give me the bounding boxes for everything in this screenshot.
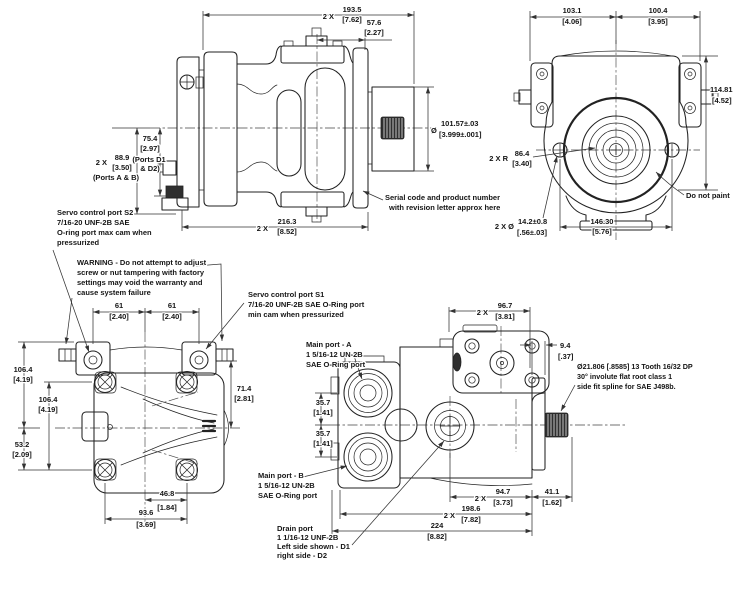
dim-2163-mm: 216.3 — [278, 217, 297, 226]
drain-line2: 1 1/16-12 UNF-2B — [277, 533, 339, 542]
spline-note-line1: Ø21.806 [.8585] 13 Tooth 16/32 DP — [577, 362, 693, 371]
spline-note-line3: side fit spline for SAE J498b. — [577, 382, 676, 391]
dim-714-mm: 71.4 — [237, 384, 252, 393]
port-centerlines — [330, 326, 626, 458]
pump-dimension-drawing: 2 X 193.5 [7.62] 57.6 [2.27] 2 X 88.9 [3… — [0, 0, 738, 594]
port-b-leader — [303, 466, 347, 477]
dim-1004-mm: 100.4 — [649, 6, 669, 15]
dim-61L-mm: 61 — [115, 301, 123, 310]
adjust-screw-left — [59, 349, 76, 361]
drawing-svg: 2 X 193.5 [7.62] 57.6 [2.27] 2 X 88.9 [3… — [0, 0, 738, 594]
dim-1004-in: [3.95] — [648, 17, 668, 26]
dim-936-mm: 93.6 — [139, 508, 154, 517]
dim-142-mm: 14.2±0.8 — [518, 217, 547, 226]
dim-142-in: [.56±.03] — [517, 228, 547, 237]
rear-centerlines — [536, 40, 700, 240]
dim-532-mm: 53.2 — [15, 440, 30, 449]
mount-port-bl — [95, 460, 116, 481]
do-not-paint-note: Do not paint — [686, 191, 730, 200]
dim-94-mm: 9.4 — [560, 341, 571, 350]
dim-1064a-mm: 106.4 — [14, 365, 34, 374]
dim-1016-in: [3.999±.001] — [439, 130, 482, 139]
dim-1986-mm: 198.6 — [462, 504, 481, 513]
dim-1064b-in: [4.19] — [38, 405, 58, 414]
dim-411-in: [1.62] — [542, 498, 562, 507]
dim-1064b-mm: 106.4 — [39, 395, 59, 404]
dim-1935-mm: 193.5 — [343, 5, 362, 14]
dim-61R-in: [2.40] — [162, 312, 182, 321]
output-spline-ribs — [548, 414, 566, 436]
servo-port-s2-boss — [84, 351, 102, 369]
port-b-line2: 1 5/16-12 UN-2B — [258, 481, 315, 490]
dim-411-mm: 41.1 — [545, 487, 560, 496]
adjust-screw-right — [216, 349, 233, 361]
main-port-b — [344, 433, 392, 481]
dim-468-mm: 46.8 — [160, 489, 175, 498]
dim-889-prefix: 2 X — [96, 158, 107, 167]
s2-note-line4: pressurized — [57, 238, 100, 247]
dim-224-mm: 224 — [431, 521, 444, 530]
port-a-line3: SAE O-Ring port — [306, 360, 366, 369]
rear-lug-right — [679, 63, 701, 127]
drain-line1: Drain port — [277, 524, 313, 533]
dim-714-in: [2.81] — [234, 394, 254, 403]
warning-leader-left — [66, 298, 72, 344]
dim-11481-in: [4.52] — [712, 96, 732, 105]
s1-leader — [206, 303, 244, 349]
dim-967-in: [3.81] — [495, 312, 515, 321]
dim-889-note: (Ports A & B) — [93, 173, 140, 182]
port-b-line3: SAE O-Ring port — [258, 491, 318, 500]
dim-94-in: [.37] — [558, 352, 574, 361]
drain-line4: right side - D2 — [277, 551, 327, 560]
side-boss — [82, 412, 108, 441]
dim-1935-prefix: 2 X — [323, 12, 334, 21]
s2-note-line1: Servo control port S2 — [57, 208, 133, 217]
dim-357a-in: [1.41] — [313, 408, 333, 417]
dim-947-prefix: 2 X — [475, 494, 486, 503]
warning-line3: settings may void the warranty and — [77, 278, 203, 287]
output-splined-shaft — [545, 413, 568, 437]
bottom-plug — [306, 207, 327, 216]
top-view: Servo control port S2 7/16-20 UNF-2B SAE… — [12, 208, 254, 529]
main-port-a — [344, 369, 392, 417]
dim-1031-in: [4.06] — [562, 17, 582, 26]
serial-leader — [363, 191, 383, 200]
s1-note-line2: 7/16-20 UNF-2B SAE O-Ring port — [248, 300, 365, 309]
dim-754-mm: 75.4 — [143, 134, 158, 143]
dim-1064a-in: [4.19] — [13, 375, 33, 384]
spline-leader — [561, 385, 575, 411]
dim-576-mm: 57.6 — [367, 18, 382, 27]
top-text: Servo control port S2 7/16-20 UNF-2B SAE… — [12, 208, 254, 529]
side-outline — [158, 28, 414, 222]
dim-1463-in: [5.76] — [592, 227, 612, 236]
dim-r864-prefix: 2 X R — [489, 154, 508, 163]
dim-576-in: [2.27] — [364, 28, 384, 37]
side-view: 2 X 193.5 [7.62] 57.6 [2.27] 2 X 88.9 [3… — [93, 5, 500, 236]
warning-line1: WARNING - Do not attempt to adjust — [77, 258, 207, 267]
dim-532-in: [2.09] — [12, 450, 32, 459]
serial-note-line1: Serial code and product number — [385, 193, 500, 202]
port-view: Servo control port S1 7/16-20 UNF-2B SAE… — [206, 290, 693, 560]
s2-note-line3: O-ring port max cam when — [57, 228, 152, 237]
s1-note-line3: min cam when pressurized — [248, 310, 344, 319]
warning-line2: screw or nut tampering with factory — [77, 268, 205, 277]
rear-view: 103.1 [4.06] 100.4 [3.95] 114.81 [4.52] … — [489, 6, 732, 240]
dim-754-note2: & D2) — [140, 164, 160, 173]
dim-11481-mm: 114.81 — [710, 85, 733, 94]
spline-ribs — [384, 118, 402, 138]
dim-61L-in: [2.40] — [109, 312, 129, 321]
dim-754-note1: (Ports D1 — [132, 155, 165, 164]
dim-r864-mm: 86.4 — [515, 149, 530, 158]
rear-lug-left — [531, 63, 553, 127]
dim-1016-symbol: Ø — [431, 126, 437, 135]
dim-754-in: [2.97] — [140, 144, 160, 153]
dim-r864-in: [3.40] — [512, 159, 532, 168]
side-text: 2 X 193.5 [7.62] 57.6 [2.27] 2 X 88.9 [3… — [93, 5, 500, 236]
dim-967-mm: 96.7 — [498, 301, 513, 310]
s1-note-line1: Servo control port S1 — [248, 290, 324, 299]
dim-889-mm: 88.9 — [115, 153, 130, 162]
dim-1986-prefix: 2 X — [444, 511, 455, 520]
dim-468-in: [1.84] — [157, 503, 177, 512]
dim-1986-in: [7.82] — [461, 515, 481, 524]
adjust-nut-top — [306, 36, 327, 46]
dim-357a-mm: 35.7 — [316, 398, 331, 407]
dim-967-prefix: 2 X — [477, 308, 488, 317]
s2-note-line2: 7/16-20 UNF-2B SAE — [57, 218, 130, 227]
dim-2163-in: [8.52] — [277, 227, 297, 236]
top-centerlines — [55, 332, 242, 524]
port-outline — [331, 325, 568, 488]
dim-142-prefix: 2 X Ø — [495, 222, 514, 231]
port-b-line1: Main port - B — [258, 471, 304, 480]
dim-1016-mm: 101.57±.03 — [441, 119, 478, 128]
serial-note-line2: with revision letter approx here — [388, 203, 500, 212]
dim-224-in: [8.82] — [427, 532, 447, 541]
port-a-line1: Main port - A — [306, 340, 352, 349]
dim-61R-mm: 61 — [168, 301, 176, 310]
dim-2163-prefix: 2 X — [257, 224, 268, 233]
dim-1935-in: [7.62] — [342, 15, 362, 24]
dim-936-in: [3.69] — [136, 520, 156, 529]
port-a-line2: 1 5/16-12 UN-2B — [306, 350, 363, 359]
dim-947-mm: 94.7 — [496, 487, 511, 496]
dim-947-in: [3.73] — [493, 498, 513, 507]
servo-port-s1-boss — [190, 351, 208, 369]
dim-889-in: [3.50] — [112, 163, 132, 172]
drain-line3: Left side shown - D1 — [277, 542, 350, 551]
rear-hex-left — [519, 90, 531, 104]
dim-357b-in: [1.41] — [313, 439, 333, 448]
spline-note-line2: 30° involute flat root class 1 — [577, 372, 672, 381]
hole-leader — [543, 156, 557, 218]
flange-boss — [490, 351, 514, 375]
dim-357b-mm: 35.7 — [316, 429, 331, 438]
dim-1463-mm: 146.30 — [591, 217, 614, 226]
dim-1031-mm: 103.1 — [563, 6, 582, 15]
port-dimensions — [206, 303, 575, 545]
splined-shaft — [381, 117, 404, 139]
warning-line4: cause system failure — [77, 288, 151, 297]
